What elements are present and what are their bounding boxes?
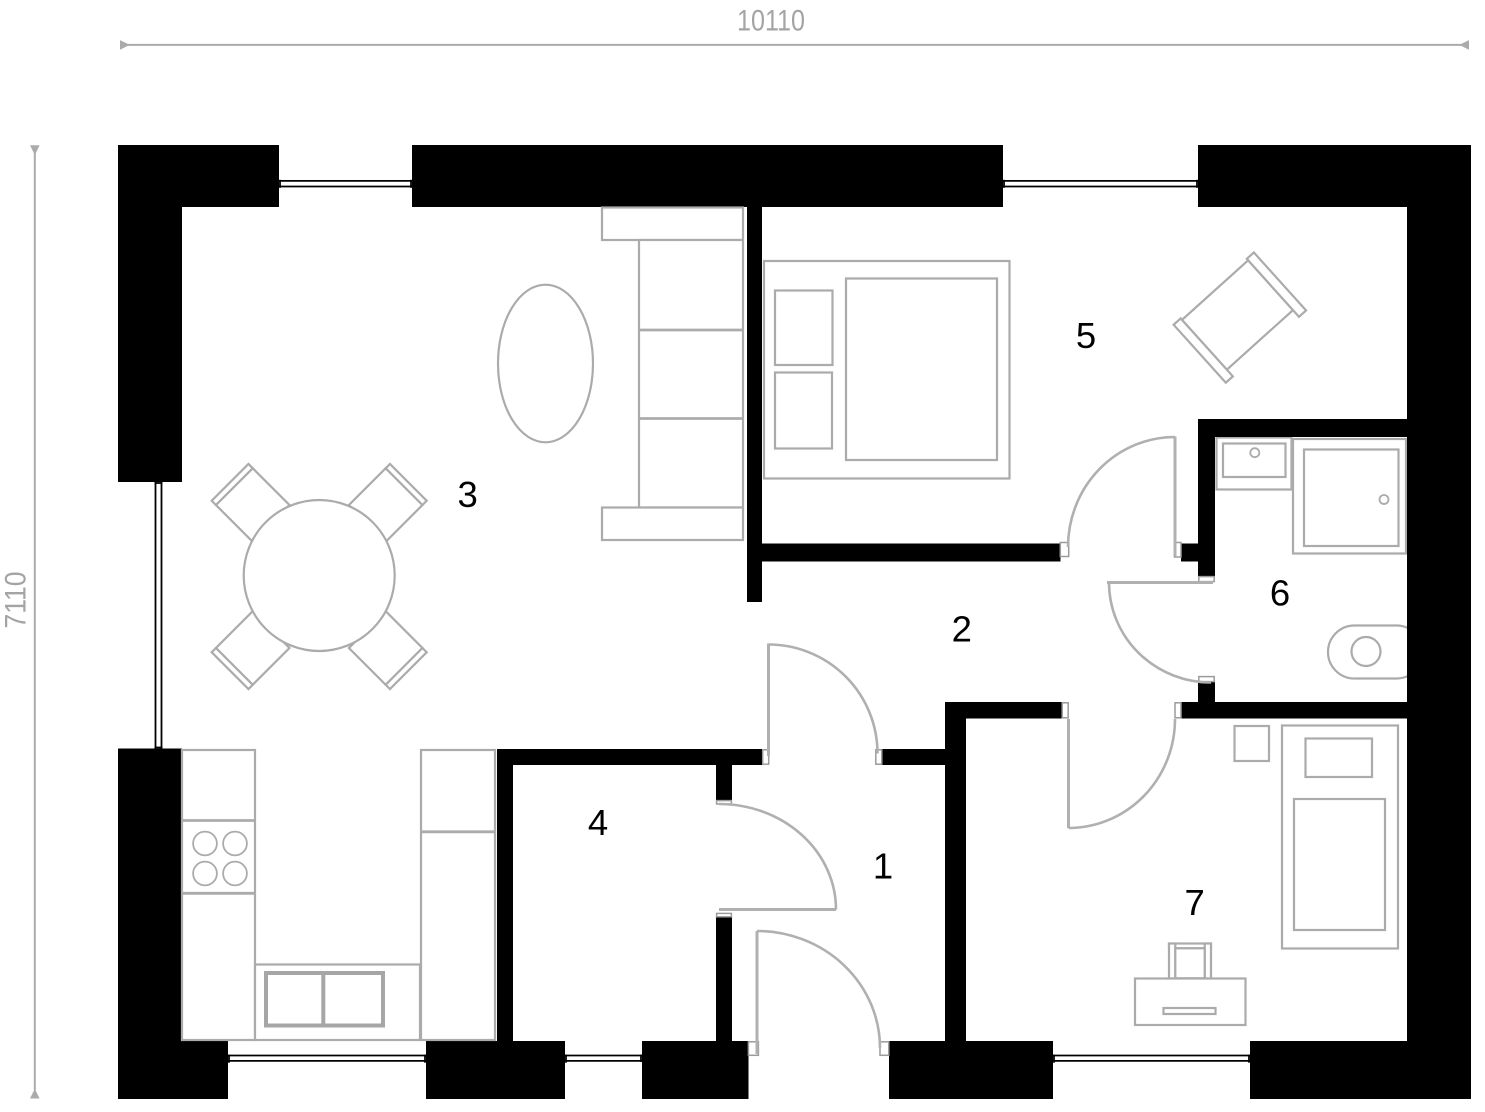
- svg-text:2: 2: [952, 608, 972, 649]
- svg-text:1: 1: [873, 846, 893, 887]
- svg-text:5: 5: [1076, 315, 1096, 356]
- svg-text:3: 3: [458, 474, 478, 515]
- svg-text:4: 4: [588, 802, 608, 843]
- svg-text:7110: 7110: [0, 572, 33, 629]
- svg-text:10110: 10110: [737, 4, 805, 37]
- svg-text:6: 6: [1270, 573, 1290, 614]
- svg-text:7: 7: [1185, 882, 1205, 923]
